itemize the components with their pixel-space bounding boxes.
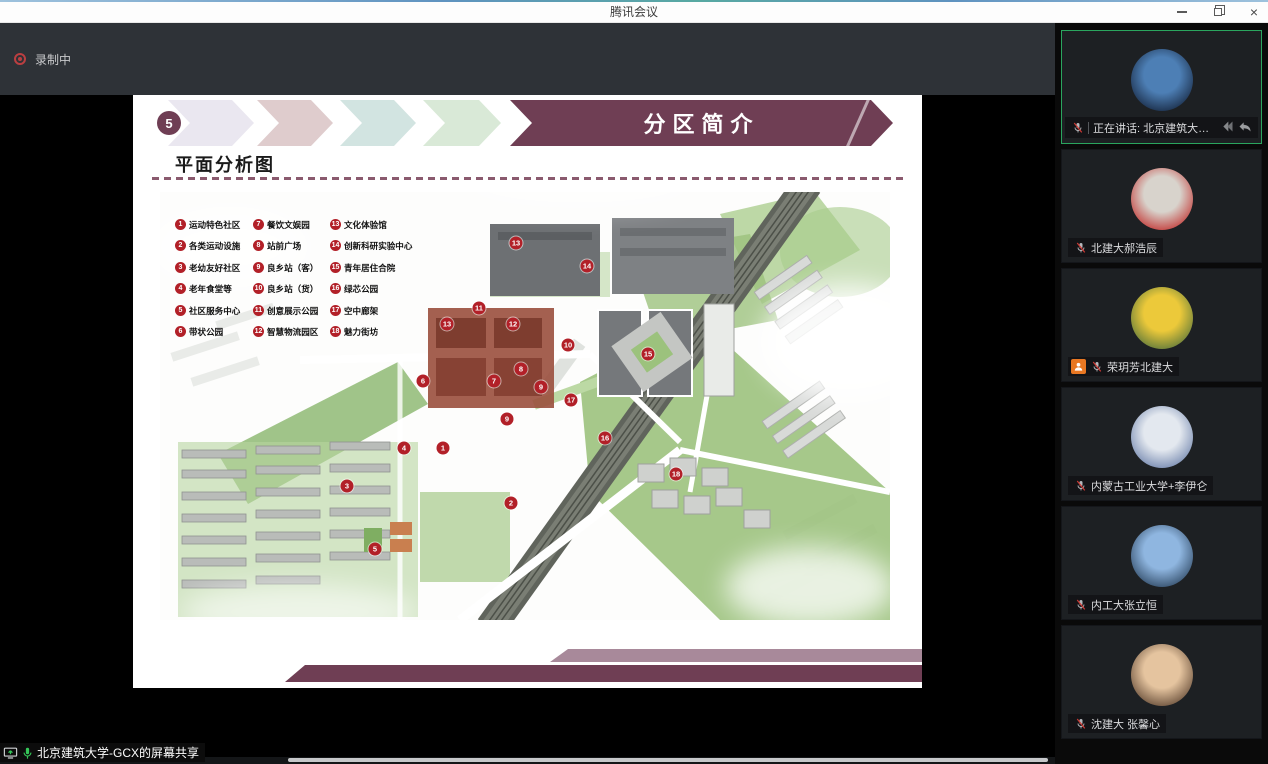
map-marker: 13 [510, 237, 523, 250]
legend-label: 良乡站（客） [267, 261, 318, 273]
avatar [1131, 525, 1193, 587]
mic-on-icon [21, 746, 34, 760]
map-marker: 1 [437, 442, 450, 455]
legend-number-badge: 1 [175, 219, 186, 230]
map-marker: 2 [505, 497, 518, 510]
participant-name: 荣玥芳北建大 [1107, 359, 1173, 375]
legend-column: 7餐饮文娱园8站前广场9良乡站（客）10良乡站（货）11创意展示公园12智慧物流… [253, 218, 330, 347]
legend-item: 4老年食堂等 [175, 283, 253, 295]
legend-column: 1运动特色社区2各类运动设施3老幼友好社区4老年食堂等5社区服务中心6带状公园 [175, 218, 253, 347]
map-marker: 6 [417, 375, 430, 388]
muted-mic-icon [1074, 479, 1087, 493]
legend-number-badge: 9 [253, 262, 264, 273]
legend-number-badge: 2 [175, 240, 186, 251]
section-title: 分区简介 [643, 107, 759, 139]
legend-label: 各类运动设施 [189, 239, 240, 251]
meeting-toolbar: 录制中 [0, 23, 1055, 95]
map-marker: 18 [670, 468, 683, 481]
legend-label: 绿芯公园 [344, 282, 378, 294]
legend-item: 16绿芯公园 [330, 283, 416, 295]
legend-number-badge: 18 [330, 326, 341, 337]
map-marker: 15 [642, 348, 655, 361]
legend-item: 15青年居住合院 [330, 261, 416, 273]
app-window: 腾讯会议 × 录制中 5 分区简介 [0, 0, 1268, 764]
legend-label: 创意展示公园 [267, 304, 318, 316]
screen-share-icon [3, 746, 18, 760]
participant-tile[interactable]: 荣玥芳北建大 [1061, 268, 1262, 382]
map-marker: 10 [562, 339, 575, 352]
window-title: 腾讯会议 [610, 3, 658, 20]
map-marker: 9 [535, 381, 548, 394]
map-marker: 17 [565, 394, 578, 407]
footer-stripe-light [550, 649, 922, 662]
map-marker: 13 [441, 318, 454, 331]
avatar [1131, 644, 1193, 706]
avatar [1131, 406, 1193, 468]
legend-number-badge: 11 [253, 305, 264, 316]
muted-mic-icon [1074, 717, 1087, 731]
close-icon: × [1250, 5, 1258, 19]
legend-label: 智慧物流园区 [267, 325, 318, 337]
muted-mic-icon [1071, 121, 1084, 135]
participant-caption: 内蒙古工业大学+李伊仑 [1068, 476, 1213, 495]
participant-caption: 北建大郝浩辰 [1068, 238, 1163, 257]
legend-column: 13文化体验馆14创新科研实验中心15青年居住合院16绿芯公园17空中廊架18魅… [330, 218, 416, 347]
map-marker: 8 [515, 363, 528, 376]
legend-label: 站前广场 [267, 239, 301, 251]
legend-label: 运动特色社区 [189, 218, 240, 230]
legend-item: 8站前广场 [253, 240, 330, 252]
section-title-chevron: 分区简介 [510, 100, 893, 146]
map-legend: 1运动特色社区2各类运动设施3老幼友好社区4老年食堂等5社区服务中心6带状公园7… [175, 218, 416, 347]
legend-number-badge: 7 [253, 219, 264, 230]
collapse-arrow-icon[interactable] [1220, 120, 1235, 136]
legend-label: 老年食堂等 [189, 282, 232, 294]
legend-item: 18魅力街坊 [330, 326, 416, 338]
caption-icons [1220, 120, 1252, 136]
titlebar[interactable]: 腾讯会议 × [0, 0, 1268, 23]
slide-header-chevrons: 5 分区简介 [133, 100, 922, 146]
reply-arrow-icon[interactable] [1237, 120, 1252, 136]
participant-caption: 正在讲话: 北京建筑大学-G... [1065, 117, 1258, 138]
legend-number-badge: 5 [175, 305, 186, 316]
participants-sidebar: 正在讲话: 北京建筑大学-G... 北建大郝浩辰 荣玥芳北建大 内蒙古工业大学+… [1055, 23, 1268, 764]
footer-stripe-dark [285, 665, 922, 682]
legend-item: 10良乡站（货） [253, 283, 330, 295]
map-marker: 3 [341, 480, 354, 493]
participant-caption: 荣玥芳北建大 [1068, 357, 1179, 376]
legend-number-badge: 13 [330, 219, 341, 230]
participant-name: 内工大张立恒 [1091, 597, 1157, 613]
chevron-3 [340, 100, 416, 146]
participant-tile[interactable]: 内工大张立恒 [1061, 506, 1262, 620]
minimize-icon [1177, 11, 1187, 13]
slide-heading: 平面分析图 [175, 151, 275, 177]
record-dot-icon [14, 53, 26, 65]
legend-label: 带状公园 [189, 325, 223, 337]
window-border-highlight [0, 0, 1268, 2]
legend-number-badge: 3 [175, 262, 186, 273]
muted-mic-icon [1074, 598, 1087, 612]
share-label: 北京建筑大学-GCX的屏幕共享 [37, 744, 199, 761]
legend-number-badge: 14 [330, 240, 341, 251]
map-marker: 11 [473, 302, 486, 315]
legend-item: 14创新科研实验中心 [330, 240, 416, 252]
legend-label: 空中廊架 [344, 304, 378, 316]
legend-item: 1运动特色社区 [175, 218, 253, 230]
legend-number-badge: 8 [253, 240, 264, 251]
presentation-slide: 5 分区简介 平面分析图 [133, 95, 922, 688]
step-number-badge: 5 [157, 111, 181, 135]
map-marker: 14 [581, 260, 594, 273]
legend-label: 魅力街坊 [344, 325, 378, 337]
map-marker: 12 [507, 318, 520, 331]
legend-item: 9良乡站（客） [253, 261, 330, 273]
restore-button[interactable] [1210, 4, 1226, 20]
minimize-button[interactable] [1174, 4, 1190, 20]
chevron-4 [423, 100, 501, 146]
legend-label: 餐饮文娱园 [267, 218, 310, 230]
recording-indicator[interactable]: 录制中 [14, 51, 71, 68]
site-plan-map: 1运动特色社区2各类运动设施3老幼友好社区4老年食堂等5社区服务中心6带状公园7… [160, 192, 890, 620]
legend-number-badge: 15 [330, 262, 341, 273]
legend-item: 13文化体验馆 [330, 218, 416, 230]
participant-name: 正在讲话: 北京建筑大学-G... [1093, 120, 1216, 136]
avatar [1131, 49, 1193, 111]
host-badge-icon [1071, 359, 1086, 374]
legend-number-badge: 16 [330, 283, 341, 294]
participant-tile[interactable]: 内蒙古工业大学+李伊仑 [1061, 387, 1262, 501]
chevron-2 [257, 100, 333, 146]
participant-caption: 沈建大 张馨心 [1068, 714, 1166, 733]
map-marker: 9 [501, 413, 514, 426]
participant-caption: 内工大张立恒 [1068, 595, 1163, 614]
legend-item: 17空中廊架 [330, 304, 416, 316]
avatar [1131, 287, 1193, 349]
legend-label: 创新科研实验中心 [344, 239, 412, 251]
legend-number-badge: 17 [330, 305, 341, 316]
restore-icon [1214, 8, 1222, 16]
muted-mic-icon [1090, 360, 1103, 374]
participant-name: 沈建大 张馨心 [1091, 716, 1160, 732]
participant-name: 北建大郝浩辰 [1091, 240, 1157, 256]
avatar [1131, 168, 1193, 230]
legend-label: 社区服务中心 [189, 304, 240, 316]
muted-mic-icon [1074, 241, 1087, 255]
participant-tile[interactable]: 正在讲话: 北京建筑大学-G... [1061, 30, 1262, 144]
shared-screen-area: 录制中 5 分区简介 平面分析图 [0, 23, 1055, 764]
legend-label: 青年居住合院 [344, 261, 395, 273]
participant-name: 内蒙古工业大学+李伊仑 [1091, 478, 1207, 494]
legend-number-badge: 12 [253, 326, 264, 337]
legend-label: 文化体验馆 [344, 218, 387, 230]
dashed-divider [152, 177, 904, 180]
legend-item: 2各类运动设施 [175, 240, 253, 252]
map-marker: 5 [369, 543, 382, 556]
legend-item: 6带状公园 [175, 326, 253, 338]
legend-number-badge: 10 [253, 283, 264, 294]
legend-item: 11创意展示公园 [253, 304, 330, 316]
scrollbar-thumb[interactable] [288, 758, 1048, 762]
legend-item: 5社区服务中心 [175, 304, 253, 316]
caption-divider [1088, 122, 1089, 134]
legend-item: 12智慧物流园区 [253, 326, 330, 338]
close-button[interactable]: × [1246, 4, 1262, 20]
participant-tile[interactable]: 北建大郝浩辰 [1061, 149, 1262, 263]
legend-item: 7餐饮文娱园 [253, 218, 330, 230]
legend-label: 良乡站（货） [267, 282, 318, 294]
map-marker: 16 [599, 432, 612, 445]
recording-label: 录制中 [35, 51, 71, 68]
legend-item: 3老幼友好社区 [175, 261, 253, 273]
screen-share-indicator: 北京建筑大学-GCX的屏幕共享 [0, 743, 205, 762]
legend-number-badge: 6 [175, 326, 186, 337]
legend-label: 老幼友好社区 [189, 261, 240, 273]
map-marker: 4 [398, 442, 411, 455]
legend-number-badge: 4 [175, 283, 186, 294]
map-marker: 7 [488, 375, 501, 388]
participant-tile[interactable]: 沈建大 张馨心 [1061, 625, 1262, 739]
